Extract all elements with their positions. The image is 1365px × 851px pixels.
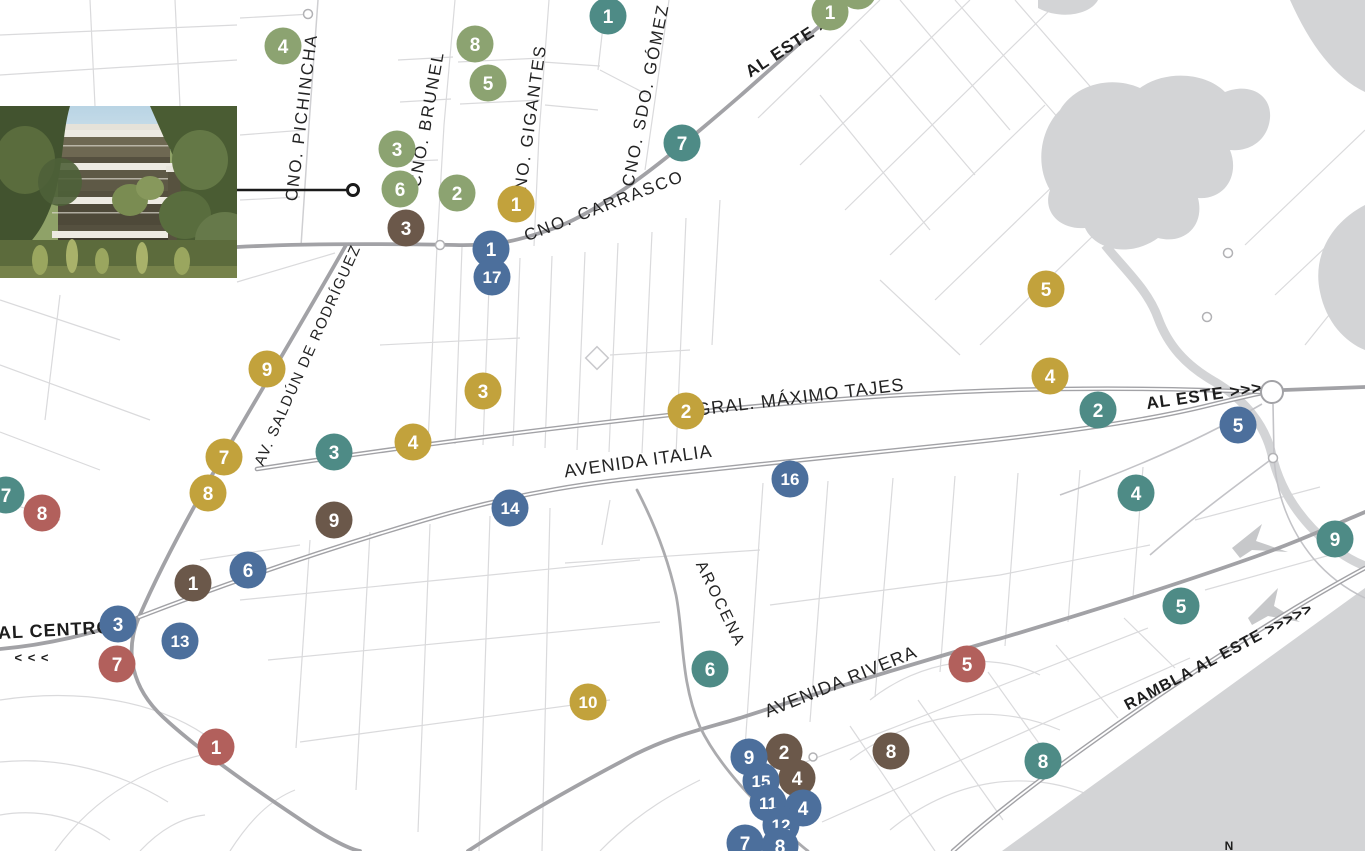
street-label-2: CNO. GIGANTES [509, 43, 550, 205]
marker-number: 1 [486, 240, 497, 261]
map-marker-green-5[interactable]: 5 [470, 65, 507, 102]
map-marker-teal-7[interactable]: 7 [0, 477, 25, 514]
map-marker-brown-3[interactable]: 3 [388, 210, 425, 247]
marker-number: 3 [392, 140, 403, 161]
marker-number: 7 [740, 834, 751, 851]
map-marker-teal-3[interactable]: 3 [316, 434, 353, 471]
map-marker-teal-5[interactable]: 5 [1163, 588, 1200, 625]
marker-number: 8 [470, 35, 481, 56]
marker-number: 1 [211, 738, 222, 759]
marker-number: 5 [483, 74, 494, 95]
marker-number: 8 [1038, 752, 1049, 773]
marker-number: 9 [1330, 530, 1341, 551]
map-marker-gold-4[interactable]: 4 [1032, 358, 1069, 395]
marker-number: 4 [792, 769, 803, 790]
marker-number: 4 [408, 433, 419, 454]
marker-number: 16 [781, 470, 800, 489]
map-marker-blue-16[interactable]: 16 [772, 461, 809, 498]
map-marker-teal-4[interactable]: 4 [1118, 475, 1155, 512]
map-marker-gold-9[interactable]: 9 [249, 351, 286, 388]
secondary-roads [1060, 404, 1365, 598]
marker-number: 3 [478, 382, 489, 403]
map-marker-gold-4[interactable]: 4 [395, 424, 432, 461]
direction-label-3: < < < [15, 650, 50, 665]
road-carrasco [237, 0, 860, 247]
beach-shore [1002, 588, 1365, 851]
water-right-edge [1318, 205, 1365, 350]
map-marker-gold-10[interactable]: 10 [570, 684, 607, 721]
marker-number: 7 [677, 134, 688, 155]
map-marker-red-5[interactable]: 5 [949, 646, 986, 683]
marker-number: 10 [579, 693, 598, 712]
marker-number: 6 [395, 180, 406, 201]
marker-number: 5 [1176, 597, 1187, 618]
map-marker-gold-3[interactable]: 3 [465, 373, 502, 410]
map-marker-gold-8[interactable]: 8 [190, 475, 227, 512]
marker-number: 6 [705, 660, 716, 681]
marker-number: 9 [262, 360, 273, 381]
marker-number: 4 [1131, 484, 1142, 505]
street-label-9: AVENIDA RIVERA [762, 642, 920, 721]
marker-number: 8 [37, 504, 48, 525]
street-label-6: GRAL. MÁXIMO TAJES [695, 374, 905, 419]
map-marker-green-6[interactable]: 6 [382, 171, 419, 208]
diamond-node [586, 347, 609, 370]
map-marker-teal-1[interactable]: 1 [590, 0, 627, 35]
marker-number: 13 [171, 632, 190, 651]
marker-number: 5 [1041, 280, 1052, 301]
marker-number: 8 [775, 837, 786, 851]
water-areas [1002, 0, 1365, 851]
marker-number: 6 [243, 561, 254, 582]
map-marker-teal-7[interactable]: 7 [664, 125, 701, 162]
roundabout [1261, 381, 1283, 403]
map-marker-brown-9[interactable]: 9 [316, 502, 353, 539]
marker-number: 7 [1, 486, 12, 507]
map-marker-gold-7[interactable]: 7 [206, 439, 243, 476]
map-marker-gold-1[interactable]: 1 [498, 186, 535, 223]
water-top-corner [1290, 0, 1365, 92]
map-marker-blue-6[interactable]: 6 [230, 552, 267, 589]
marker-number: 3 [401, 219, 412, 240]
marker-number: 17 [483, 268, 502, 287]
direction-label-2: AL CENTRO [0, 617, 112, 643]
marker-number: 14 [501, 499, 520, 518]
pond [1041, 76, 1270, 250]
map-marker-red-1[interactable]: 1 [198, 729, 235, 766]
map-marker-green-3[interactable]: 3 [379, 131, 416, 168]
map-marker-brown-8[interactable]: 8 [873, 733, 910, 770]
map-marker-blue-5[interactable]: 5 [1220, 407, 1257, 444]
marker-number: 5 [962, 655, 973, 676]
road-al-este [1284, 387, 1365, 390]
marker-number: 8 [886, 742, 897, 763]
street-labels: CNO. PICHINCHACNO. BRUNELCNO. GIGANTESCN… [251, 2, 920, 721]
marker-number: 1 [825, 3, 836, 24]
property-photo [0, 106, 255, 278]
map-marker-blue-17[interactable]: 17 [474, 259, 511, 296]
marker-number: 2 [1093, 401, 1104, 422]
marker-number: 5 [1233, 416, 1244, 437]
map-marker-teal-8[interactable]: 8 [1025, 743, 1062, 780]
map-marker-blue-14[interactable]: 14 [492, 490, 529, 527]
direction-label-5: N [1225, 839, 1234, 851]
map-marker-blue-3[interactable]: 3 [100, 606, 137, 643]
map-marker-green-8[interactable]: 8 [457, 26, 494, 63]
marker-number: 3 [113, 615, 124, 636]
marker-number: 8 [203, 484, 214, 505]
street-label-7: AVENIDA ITALIA [563, 441, 714, 482]
map-marker-brown-1[interactable]: 1 [175, 565, 212, 602]
map-marker-teal-9[interactable]: 9 [1317, 521, 1354, 558]
map-marker-green-2[interactable]: 2 [439, 175, 476, 212]
neighborhood-map: CNO. PICHINCHACNO. BRUNELCNO. GIGANTESCN… [0, 0, 1365, 851]
map-marker-blue-13[interactable]: 13 [162, 623, 199, 660]
street-label-4: CNO. CARRASCO [521, 167, 686, 246]
marker-number: 7 [219, 448, 230, 469]
marker-number: 4 [1045, 367, 1056, 388]
map-marker-teal-2[interactable]: 2 [1080, 392, 1117, 429]
marker-number: 2 [681, 402, 692, 423]
map-marker-teal-6[interactable]: 6 [692, 651, 729, 688]
map-marker-green-4[interactable]: 4 [265, 28, 302, 65]
marker-number: 1 [511, 195, 522, 216]
marker-number: 2 [452, 184, 463, 205]
street-label-8: AROCENA [692, 558, 748, 649]
marker-number: 1 [188, 574, 199, 595]
map-marker-gold-2[interactable]: 2 [668, 393, 705, 430]
marker-number: 7 [112, 655, 123, 676]
map-marker-red-8[interactable]: 8 [24, 495, 61, 532]
connector-ring [348, 185, 359, 196]
marker-number: 1 [603, 7, 614, 28]
marker-number: 4 [798, 799, 809, 820]
map-marker-red-7[interactable]: 7 [99, 646, 136, 683]
marker-number: 9 [329, 511, 340, 532]
map-marker-blue-7[interactable]: 7 [727, 825, 764, 851]
neighborhood-map-page: CNO. PICHINCHACNO. BRUNELCNO. GIGANTESCN… [0, 0, 1365, 851]
marker-number: 3 [329, 443, 340, 464]
marker-number: 2 [779, 743, 790, 764]
map-marker-gold-5[interactable]: 5 [1028, 271, 1065, 308]
marker-number: 4 [278, 37, 289, 58]
